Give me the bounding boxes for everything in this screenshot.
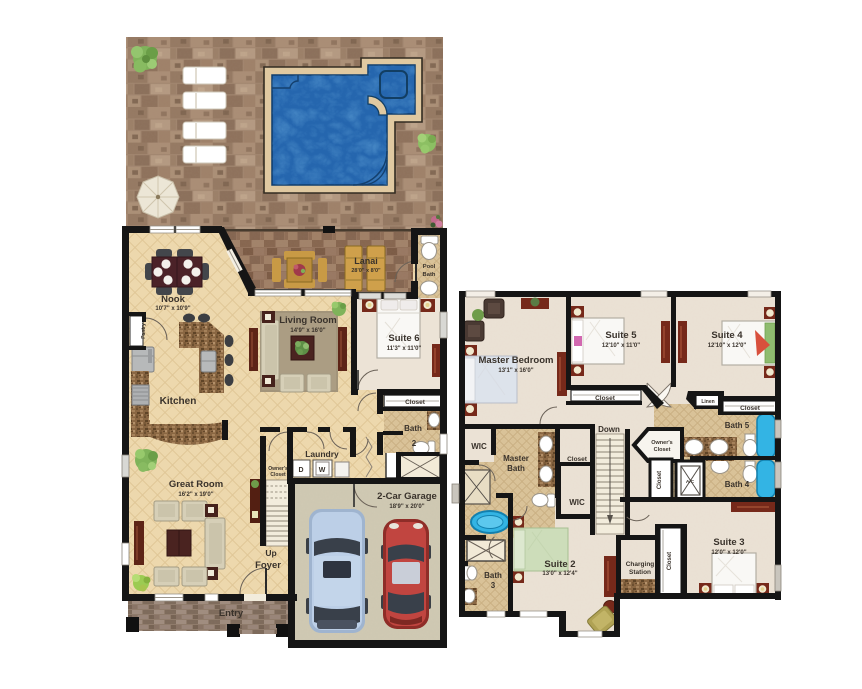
svg-text:Down: Down xyxy=(598,425,620,434)
svg-text:WIC: WIC xyxy=(471,442,487,451)
svg-text:2: 2 xyxy=(412,439,417,448)
svg-text:Closet: Closet xyxy=(595,395,616,402)
svg-text:2-Car Garage: 2-Car Garage xyxy=(377,491,437,502)
svg-text:3: 3 xyxy=(491,581,496,590)
svg-text:11'3" x 11'0": 11'3" x 11'0" xyxy=(387,346,422,352)
svg-text:Master: Master xyxy=(503,454,529,463)
svg-text:Closet: Closet xyxy=(654,447,671,453)
svg-text:Suite 4: Suite 4 xyxy=(711,330,743,341)
svg-text:D: D xyxy=(298,467,303,474)
svg-text:Station: Station xyxy=(629,569,651,576)
svg-text:Bath 4: Bath 4 xyxy=(725,480,750,489)
svg-text:Entry: Entry xyxy=(219,608,244,619)
svg-text:Lanai: Lanai xyxy=(354,256,378,266)
svg-text:Up: Up xyxy=(265,548,276,558)
svg-text:Suite 6: Suite 6 xyxy=(388,333,419,344)
svg-text:Linen: Linen xyxy=(701,399,714,405)
svg-text:14'9" x 16'0": 14'9" x 16'0" xyxy=(290,328,325,334)
svg-text:Closet: Closet xyxy=(405,399,426,406)
svg-text:Closet: Closet xyxy=(740,405,761,412)
svg-text:Bath 5: Bath 5 xyxy=(725,421,750,430)
svg-text:13'1" x 16'0": 13'1" x 16'0" xyxy=(498,368,533,374)
svg-text:12'0" x 12'0": 12'0" x 12'0" xyxy=(711,550,746,556)
svg-text:Bath: Bath xyxy=(404,424,422,433)
svg-text:A/C: A/C xyxy=(686,479,695,485)
svg-text:Bath: Bath xyxy=(423,272,436,278)
svg-text:Nook: Nook xyxy=(161,294,185,305)
svg-text:WIC: WIC xyxy=(569,498,585,507)
svg-text:Suite 3: Suite 3 xyxy=(713,537,744,548)
svg-text:Laundry: Laundry xyxy=(305,449,339,459)
svg-text:16'2" x 19'0": 16'2" x 19'0" xyxy=(178,492,213,498)
svg-text:Closet: Closet xyxy=(270,472,286,478)
svg-text:Suite 2: Suite 2 xyxy=(544,559,575,570)
svg-text:Pool: Pool xyxy=(423,264,436,270)
svg-text:18'9" x 20'0": 18'9" x 20'0" xyxy=(389,504,424,510)
svg-text:Closet: Closet xyxy=(567,456,588,463)
svg-text:Closet: Closet xyxy=(667,552,673,570)
svg-text:Bath: Bath xyxy=(484,571,502,580)
svg-text:10'7" x 10'9": 10'7" x 10'9" xyxy=(155,306,190,312)
svg-text:Kitchen: Kitchen xyxy=(160,396,197,407)
svg-text:12'10" x 11'0": 12'10" x 11'0" xyxy=(602,343,640,349)
svg-text:Great Room: Great Room xyxy=(169,479,223,490)
svg-text:Pantry: Pantry xyxy=(141,323,147,339)
svg-text:Owner's: Owner's xyxy=(651,440,672,446)
svg-text:Charging: Charging xyxy=(626,561,655,568)
svg-text:13'0" x 12'4": 13'0" x 12'4" xyxy=(542,571,577,577)
svg-text:28'0" x 8'0": 28'0" x 8'0" xyxy=(351,268,381,274)
svg-text:Master Bedroom: Master Bedroom xyxy=(479,355,554,366)
svg-text:Bath: Bath xyxy=(507,464,525,473)
svg-text:Closet: Closet xyxy=(657,471,663,489)
svg-text:Suite 5: Suite 5 xyxy=(605,330,637,341)
svg-text:12'10" x 12'0": 12'10" x 12'0" xyxy=(708,343,747,349)
svg-text:W: W xyxy=(319,467,326,474)
svg-text:Living Room: Living Room xyxy=(279,315,337,326)
